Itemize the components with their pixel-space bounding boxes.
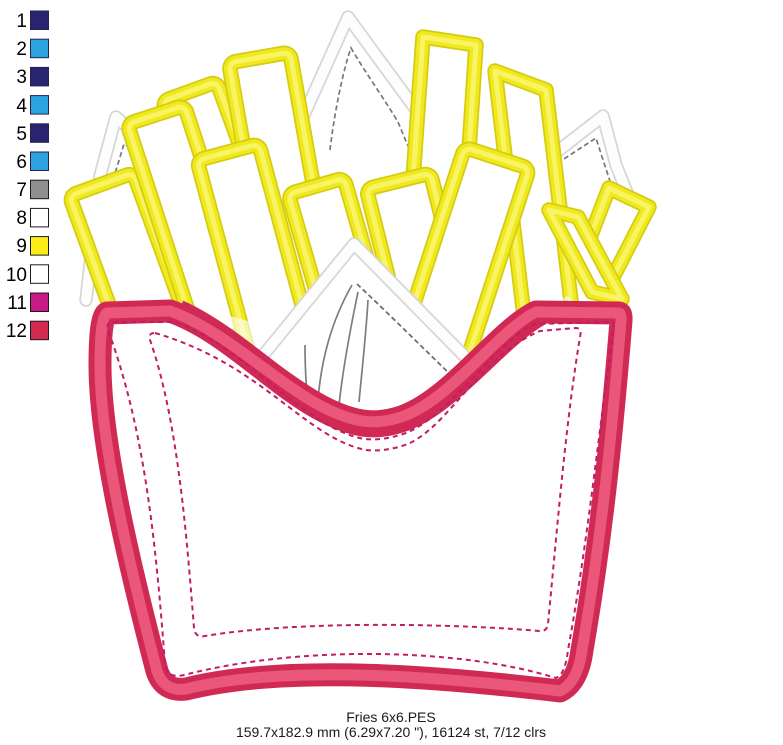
svg-text:4: 4	[16, 96, 27, 117]
svg-text:8: 8	[16, 208, 27, 229]
svg-text:12: 12	[6, 321, 27, 342]
svg-text:10: 10	[6, 265, 27, 286]
svg-text:9: 9	[16, 236, 27, 257]
svg-text:3: 3	[16, 67, 27, 88]
svg-text:1: 1	[16, 11, 27, 32]
svg-text:6: 6	[16, 152, 27, 173]
svg-text:2: 2	[16, 39, 27, 60]
svg-text:Fries 6x6.PES: Fries 6x6.PES	[346, 709, 435, 725]
svg-text:5: 5	[16, 124, 27, 145]
svg-text:159.7x182.9 mm (6.29x7.20 "),: 159.7x182.9 mm (6.29x7.20 "), 16124 st, …	[236, 724, 546, 740]
svg-text:11: 11	[7, 293, 27, 314]
svg-text:7: 7	[16, 180, 27, 201]
